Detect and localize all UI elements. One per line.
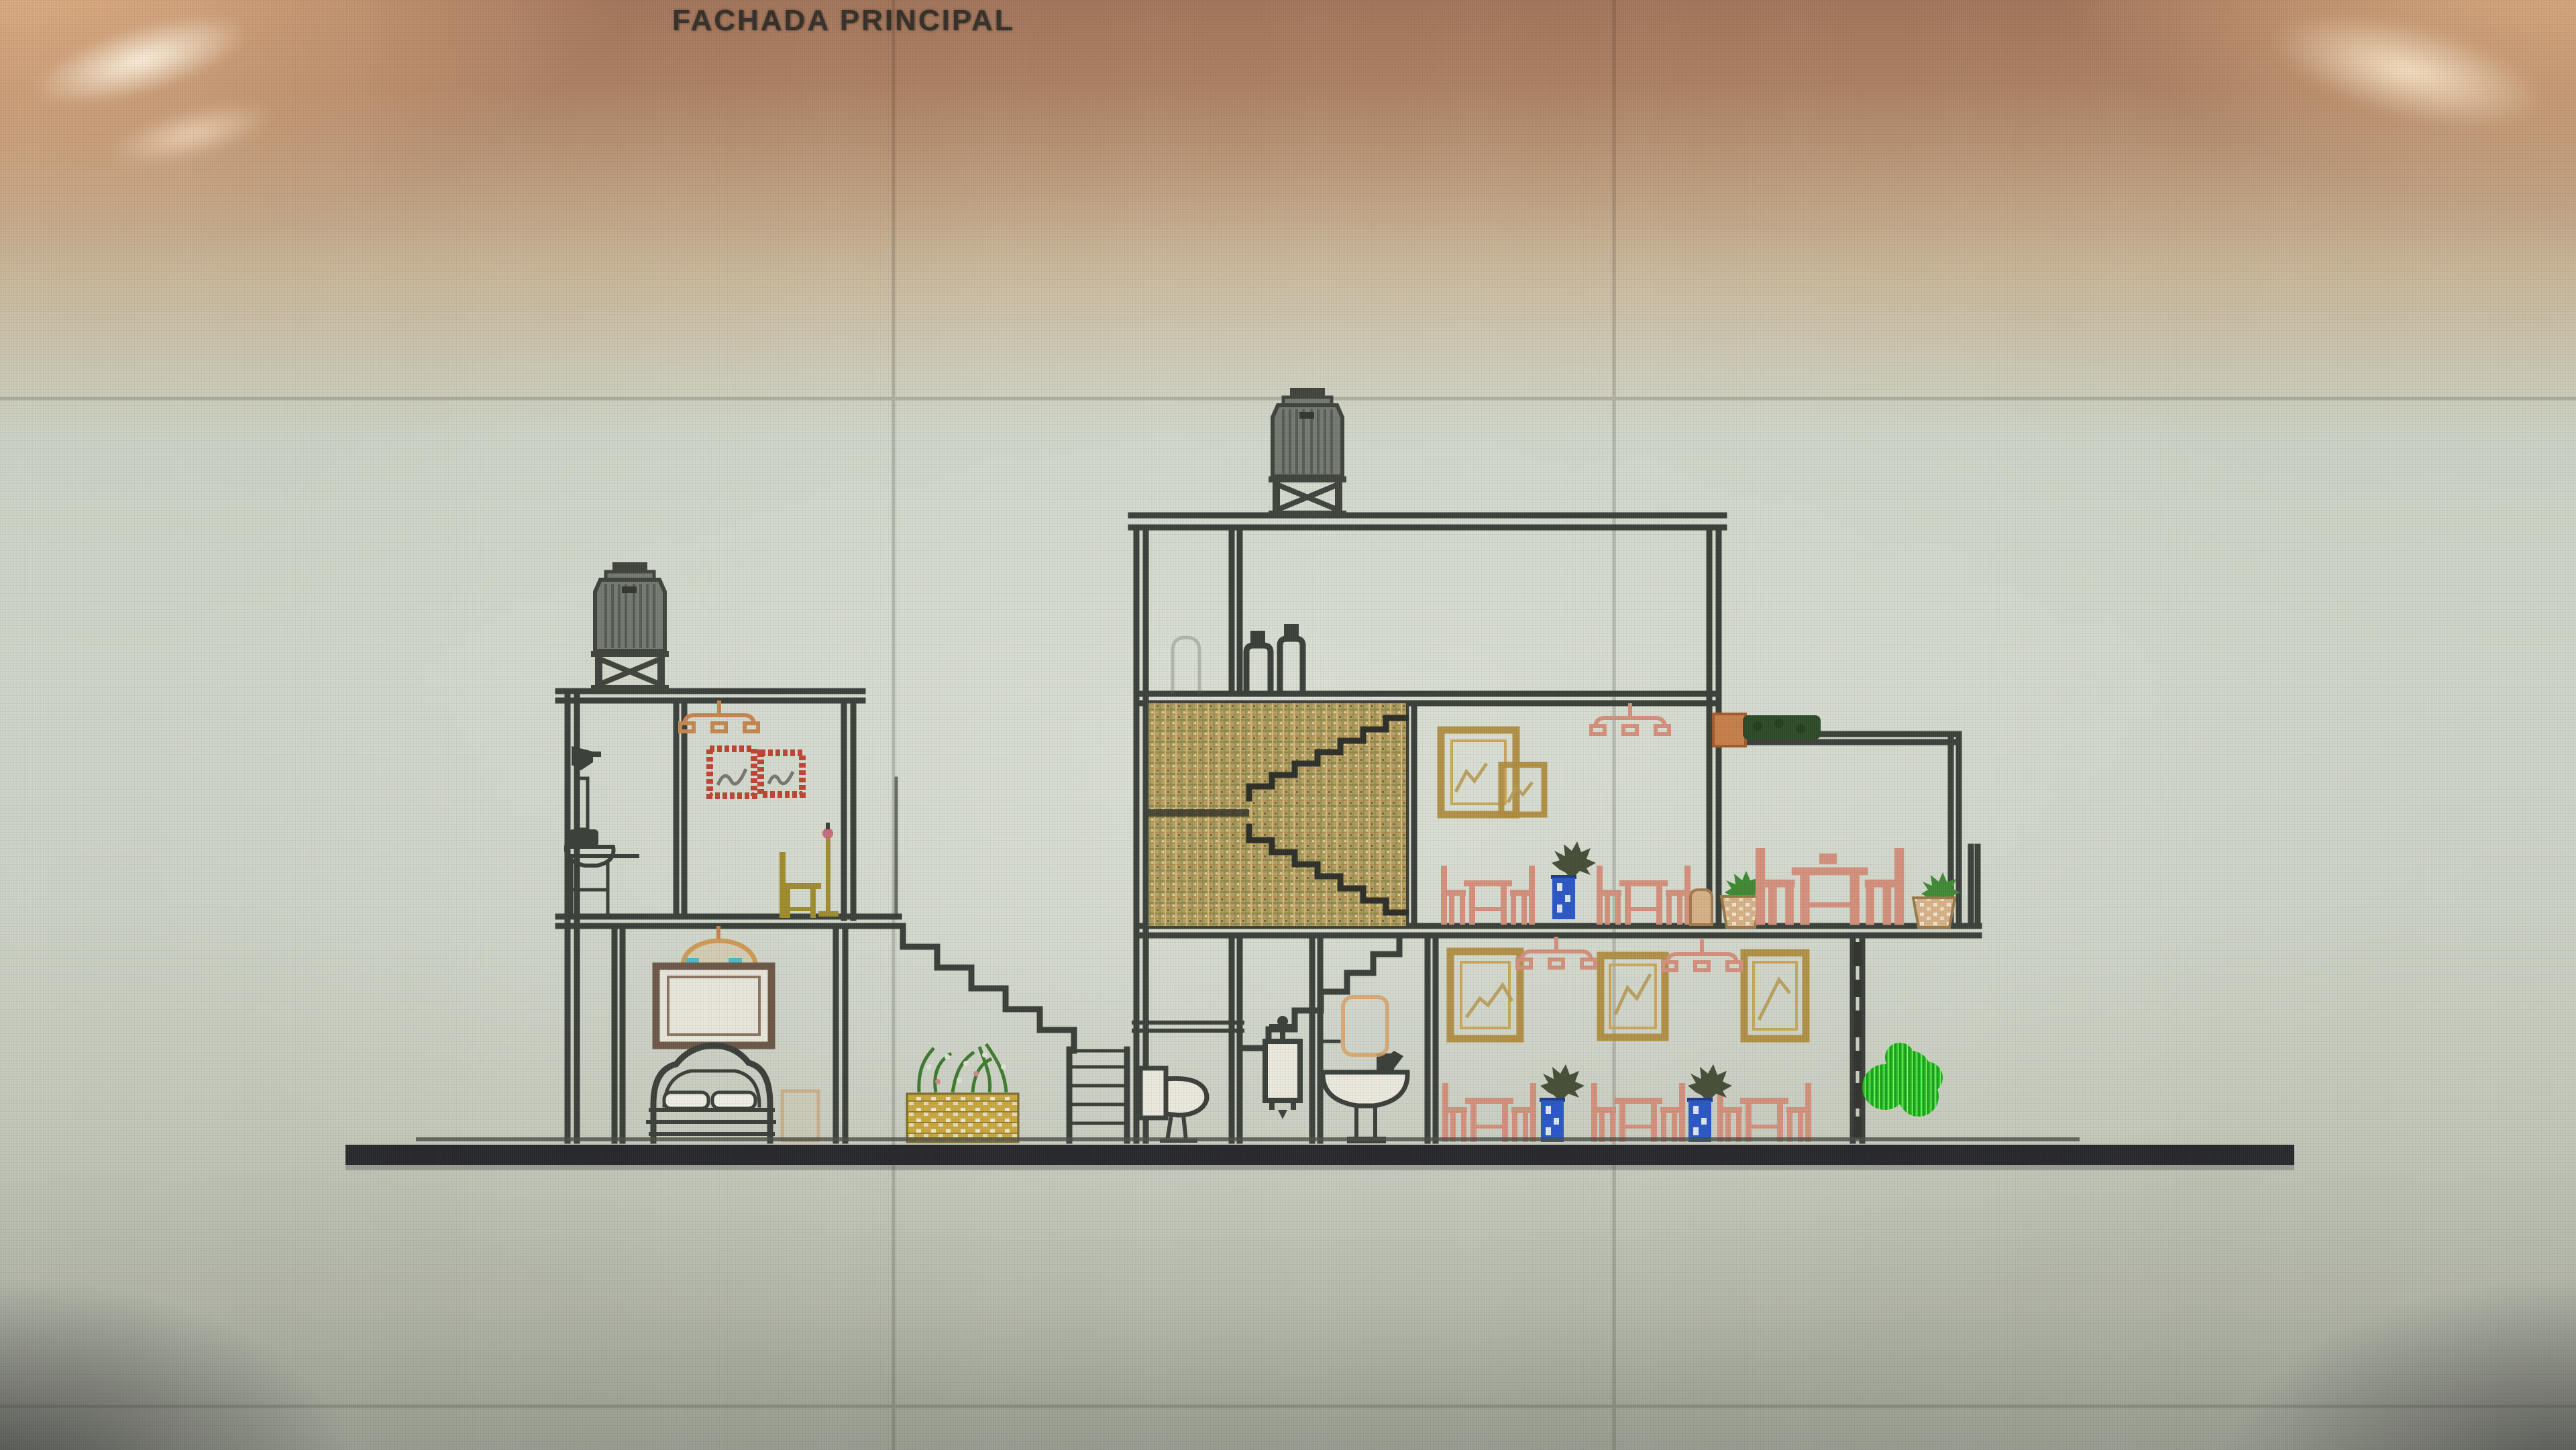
- bedroom-bed: [648, 1045, 774, 1141]
- upper-room-picture-frames: [710, 749, 802, 796]
- bedroom-picture-frame: [656, 966, 771, 1045]
- ground-line: [345, 1139, 2294, 1170]
- pedestal-sink: [1323, 1051, 1407, 1143]
- upper-dining-gold-frames: [1441, 730, 1544, 815]
- cad-elevation-drawing: [0, 0, 2576, 1450]
- terrace-railing-post: [1971, 847, 1978, 926]
- drawing-title: FACHADA PRINCIPAL: [672, 4, 1015, 38]
- upper-dining-plant-stand: [1551, 841, 1596, 919]
- ground-dining-gold-frames: [1450, 951, 1806, 1039]
- flower-planter: [907, 1044, 1018, 1142]
- bathroom-mirror: [1343, 997, 1387, 1055]
- ground-dining-table-sets: [1442, 1083, 1811, 1142]
- stair-landing: [1148, 809, 1249, 817]
- upper-room-chair: [780, 852, 821, 918]
- roof-terrace: [1713, 714, 1978, 927]
- water-tank-left: [591, 562, 669, 691]
- screen-photo: FACHADA PRINCIPAL: [0, 0, 2576, 1450]
- stair-hatch-panel: [1148, 703, 1406, 926]
- entry-door-wall: [1853, 935, 1862, 1141]
- roof-room-vase: [1173, 637, 1199, 694]
- exterior-stair: [869, 926, 1074, 1051]
- water-tank-main: [1269, 388, 1346, 517]
- wall-pipe: [1312, 938, 1339, 1141]
- roof-room-bottles: [1246, 624, 1303, 694]
- terrace-teapot: [1819, 853, 1837, 864]
- upper-room-pendant-lamp: [680, 701, 758, 731]
- upper-room-floor-lamp: [818, 823, 839, 917]
- upper-dining-pendant-lamp: [1591, 703, 1669, 734]
- bedroom-ceiling-lamp: [683, 926, 755, 969]
- stair-ladder: [1069, 1049, 1127, 1141]
- bedroom-nightstand: [782, 1091, 818, 1141]
- upper-dining-urn: [1690, 890, 1712, 925]
- bathroom-toilet: [1140, 1068, 1207, 1141]
- green-shrub: [1862, 1043, 1943, 1117]
